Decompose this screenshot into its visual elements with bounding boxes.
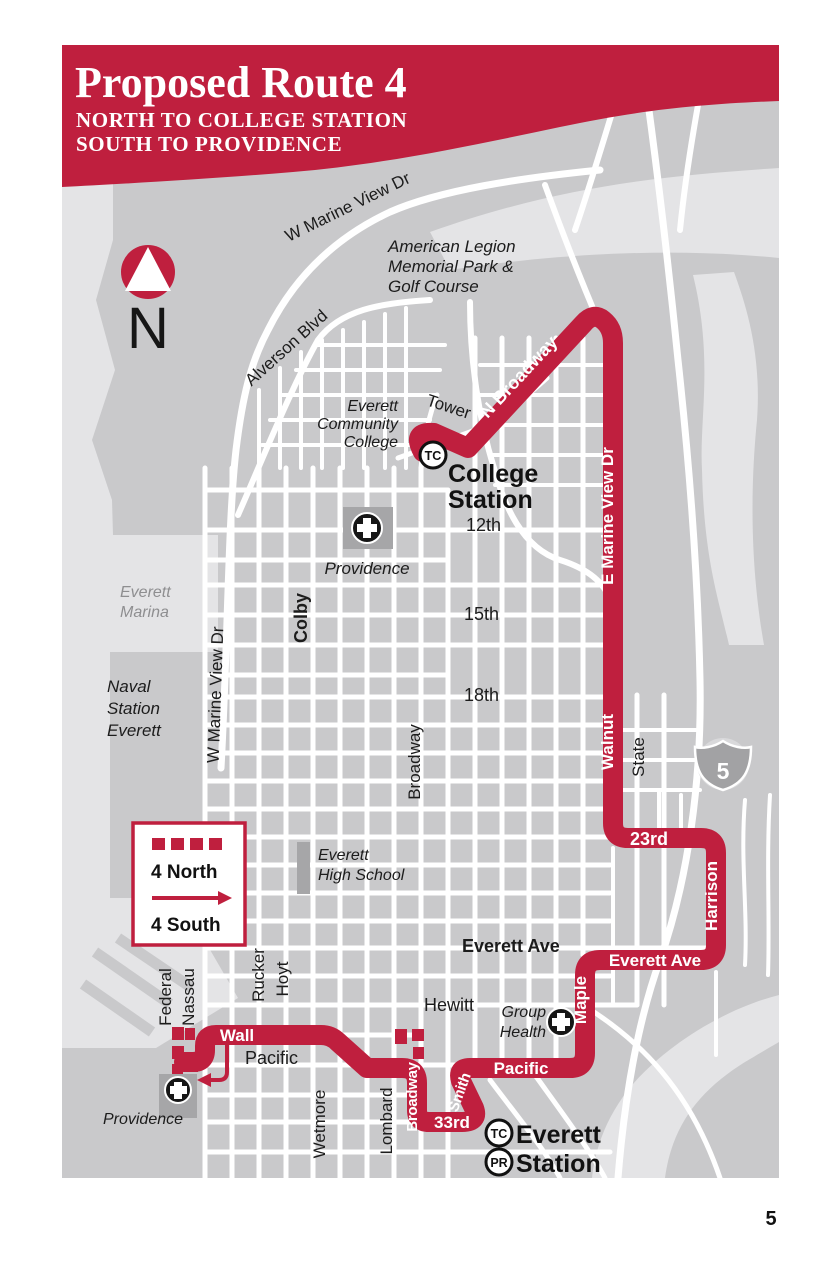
everett-station-label-line2: Station: [516, 1150, 601, 1178]
street-label-federal: Federal: [156, 968, 175, 1026]
route-dash: [186, 1061, 198, 1072]
everett-station-label-line1: Everett: [516, 1121, 601, 1149]
college-station-label-line2: Station: [448, 486, 533, 514]
route-dash: [172, 1046, 184, 1059]
place-american-legion-line3: Golf Course: [388, 277, 479, 296]
page-title: Proposed Route 4: [75, 58, 407, 107]
place-everett-hs-line1: Everett: [318, 847, 369, 864]
pr-badge-label: PR: [490, 1156, 507, 1170]
place-american-legion-line1: American Legion: [387, 237, 516, 256]
route-map: Proposed Route 4 NORTH TO COLLEGE STATIO…: [0, 0, 825, 1275]
route-label-23rd: 23rd: [630, 829, 668, 849]
legend-north-label: 4 North: [151, 862, 218, 883]
page-subtitle-line2: SOUTH TO PROVIDENCE: [76, 132, 342, 156]
street-label-everett-ave: Everett Ave: [462, 936, 560, 956]
street-label-state: State: [629, 737, 648, 777]
route-dash: [395, 1029, 407, 1044]
place-naval-station-line1: Naval: [107, 677, 152, 696]
transit-map-page: Proposed Route 4 NORTH TO COLLEGE STATIO…: [0, 0, 825, 1275]
place-naval-station-line2: Station: [107, 699, 160, 718]
route-label-broadway: Broadway: [404, 1061, 421, 1131]
place-group-health-line1: Group: [502, 1004, 547, 1021]
route-label-harrison: Harrison: [702, 861, 721, 931]
street-label-nassau: Nassau: [179, 968, 198, 1026]
place-providence-south: Providence: [103, 1111, 183, 1128]
route-dash: [413, 1047, 424, 1059]
route-label-pacific: Pacific: [494, 1059, 549, 1078]
page-number: 5: [765, 1208, 776, 1230]
street-label-wetmore: Wetmore: [310, 1090, 329, 1159]
street-label-hoyt: Hoyt: [273, 961, 292, 996]
college-station-label-line1: College: [448, 460, 538, 488]
route-label-walnut: Walnut: [598, 714, 617, 770]
tc-badge-label: TC: [491, 1127, 508, 1141]
legend-south-label: 4 South: [151, 915, 221, 936]
place-everett-marina-line2: Marina: [120, 604, 169, 621]
street-label-18th: 18th: [464, 685, 499, 705]
street-label-pacific: Pacific: [245, 1048, 298, 1068]
route-label-e-marine-view-dr: E Marine View Dr: [598, 447, 617, 585]
street-label-rucker: Rucker: [249, 948, 268, 1002]
route-label-wall: Wall: [220, 1026, 254, 1045]
route-dash: [412, 1029, 424, 1041]
street-label-12th: 12th: [466, 515, 501, 535]
place-group-health-line2: Health: [500, 1024, 546, 1041]
compass-label: N: [127, 296, 169, 361]
place-american-legion-line2: Memorial Park &: [388, 257, 514, 276]
route-label-maple: Maple: [571, 976, 590, 1024]
place-naval-station-line3: Everett: [107, 721, 162, 740]
page-subtitle-line1: NORTH TO COLLEGE STATION: [76, 108, 407, 132]
everett-high-school-building: [297, 842, 310, 894]
interstate-number: 5: [717, 758, 730, 784]
place-everett-marina-line1: Everett: [120, 584, 171, 601]
route-label-everett-ave: Everett Ave: [609, 951, 701, 970]
place-providence-north: Providence: [324, 559, 409, 578]
tc-badge-label: TC: [425, 449, 442, 463]
place-everett-cc-line3: College: [344, 434, 398, 451]
compass: N: [121, 245, 175, 361]
route-dash: [172, 1064, 183, 1074]
street-label-broadway: Broadway: [405, 724, 424, 800]
providence-north-hospital-icon: [352, 513, 382, 543]
street-label-colby: Colby: [291, 593, 311, 643]
street-label-lombard: Lombard: [377, 1087, 396, 1154]
place-everett-cc-line2: Community: [317, 416, 399, 433]
place-everett-hs-line2: High School: [318, 867, 405, 884]
place-everett-cc-line1: Everett: [347, 398, 398, 415]
street-label-hewitt: Hewitt: [424, 995, 474, 1015]
route-label-33rd: 33rd: [434, 1113, 470, 1132]
route-dash: [172, 1027, 184, 1040]
legend: 4 North 4 South: [133, 823, 245, 945]
providence-south-hospital-icon: [165, 1077, 191, 1103]
street-label-15th: 15th: [464, 604, 499, 624]
route-dash: [185, 1028, 195, 1040]
